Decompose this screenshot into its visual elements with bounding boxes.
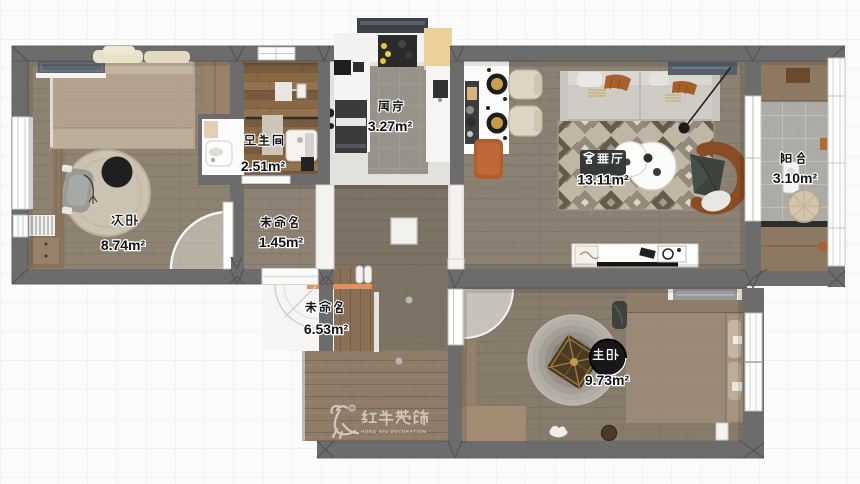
svg-text:9.73m²: 9.73m² [585, 372, 630, 388]
svg-text:8.74m²: 8.74m² [101, 237, 146, 253]
svg-text:6.53m²: 6.53m² [304, 321, 349, 337]
svg-text:3.10m²: 3.10m² [773, 170, 818, 186]
svg-text:2.51m²: 2.51m² [241, 158, 286, 174]
svg-text:HONG NIU DECORATION: HONG NIU DECORATION [361, 429, 427, 434]
svg-text:13.11m²: 13.11m² [577, 172, 629, 188]
svg-text:3.27m²: 3.27m² [368, 118, 413, 134]
svg-text:R: R [350, 407, 354, 413]
svg-text:1.45m²: 1.45m² [259, 234, 304, 250]
